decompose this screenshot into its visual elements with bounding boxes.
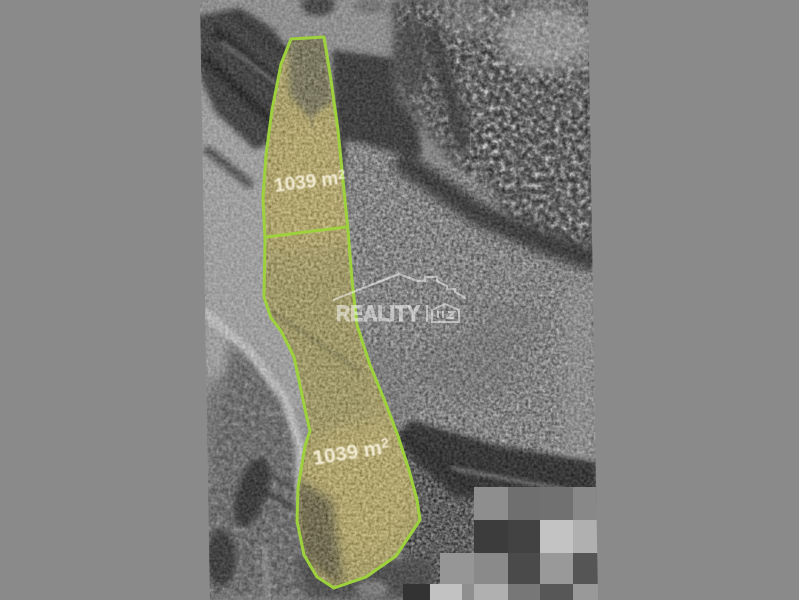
svg-text:REALITY: REALITY [336, 301, 420, 326]
